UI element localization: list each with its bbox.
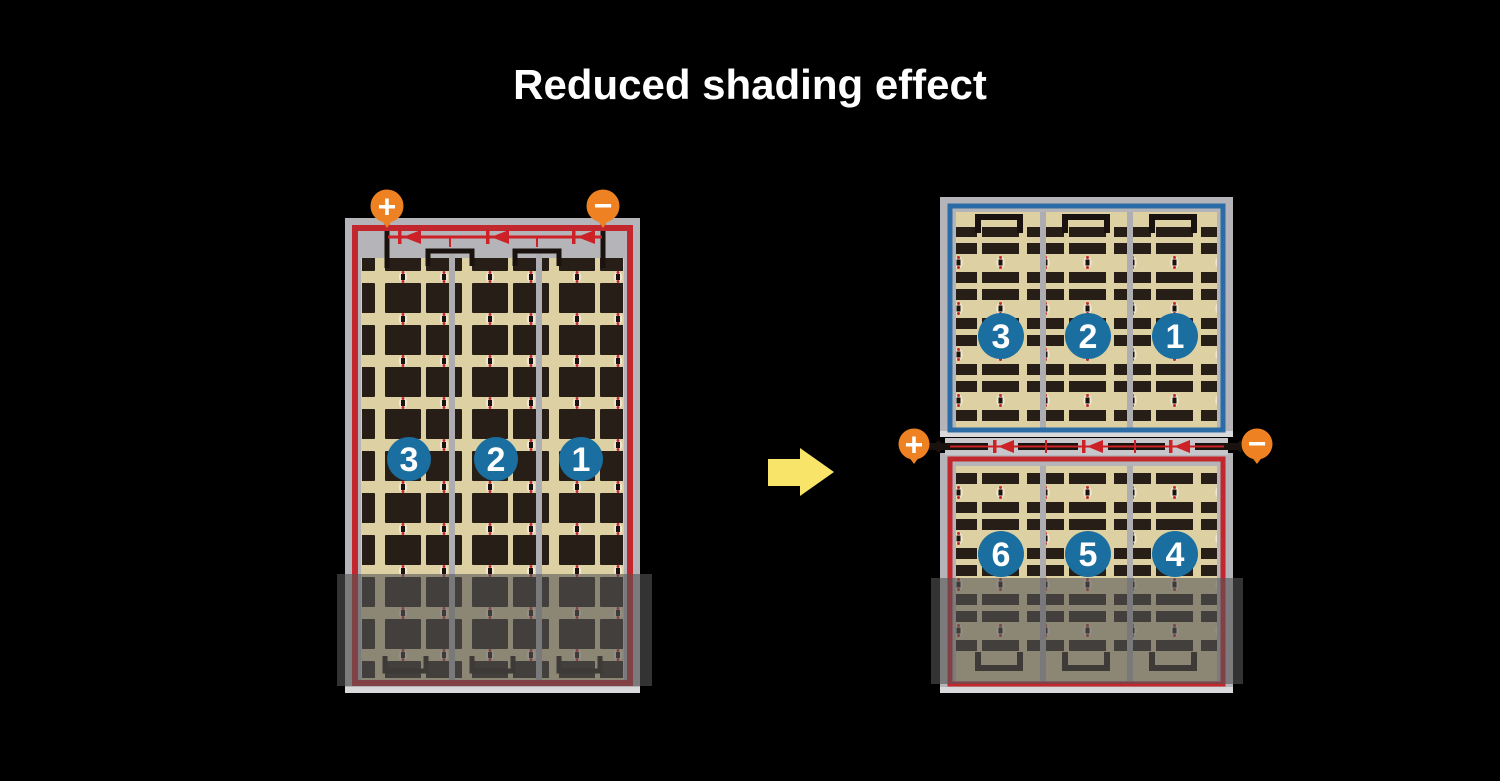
string-number-badge: 6 [978, 531, 1024, 577]
string-number-badge: 2 [474, 437, 518, 481]
string-number-badge: 3 [978, 313, 1024, 359]
string-number-badge: 1 [559, 437, 603, 481]
minus-terminal-icon: − [1242, 426, 1273, 464]
shading-overlay [337, 574, 652, 686]
half-cell-module: 3 2 1 [890, 185, 1300, 710]
svg-text:2: 2 [487, 441, 506, 479]
transform-arrow-icon [755, 440, 850, 502]
string-number-badge: 2 [1065, 313, 1111, 359]
reduced-shading-diagram: Reduced shading effect [0, 0, 1500, 781]
svg-text:3: 3 [400, 441, 419, 479]
svg-text:5: 5 [1079, 536, 1098, 574]
string-number-badge: 3 [387, 437, 431, 481]
svg-text:+: + [378, 189, 397, 225]
svg-text:4: 4 [1166, 536, 1185, 574]
shading-overlay [931, 578, 1243, 684]
full-cell-module: 3 2 1 + − [330, 185, 680, 705]
string-divider [1040, 212, 1046, 428]
svg-text:6: 6 [992, 536, 1011, 574]
string-number-badge: 4 [1152, 531, 1198, 577]
svg-text:−: − [1248, 426, 1267, 462]
svg-text:1: 1 [572, 441, 591, 479]
svg-text:1: 1 [1166, 318, 1185, 356]
svg-text:+: + [905, 427, 924, 463]
svg-text:2: 2 [1079, 318, 1098, 356]
svg-text:3: 3 [992, 318, 1011, 356]
svg-text:−: − [594, 188, 613, 224]
string-number-badge: 1 [1152, 313, 1198, 359]
plus-terminal-icon: + [899, 427, 930, 464]
string-number-badge: 5 [1065, 531, 1111, 577]
page-title: Reduced shading effect [0, 64, 1500, 106]
junction-diode-strip [928, 438, 1247, 455]
string-divider [1127, 212, 1133, 428]
top-half-panel: 3 2 1 [940, 197, 1233, 437]
